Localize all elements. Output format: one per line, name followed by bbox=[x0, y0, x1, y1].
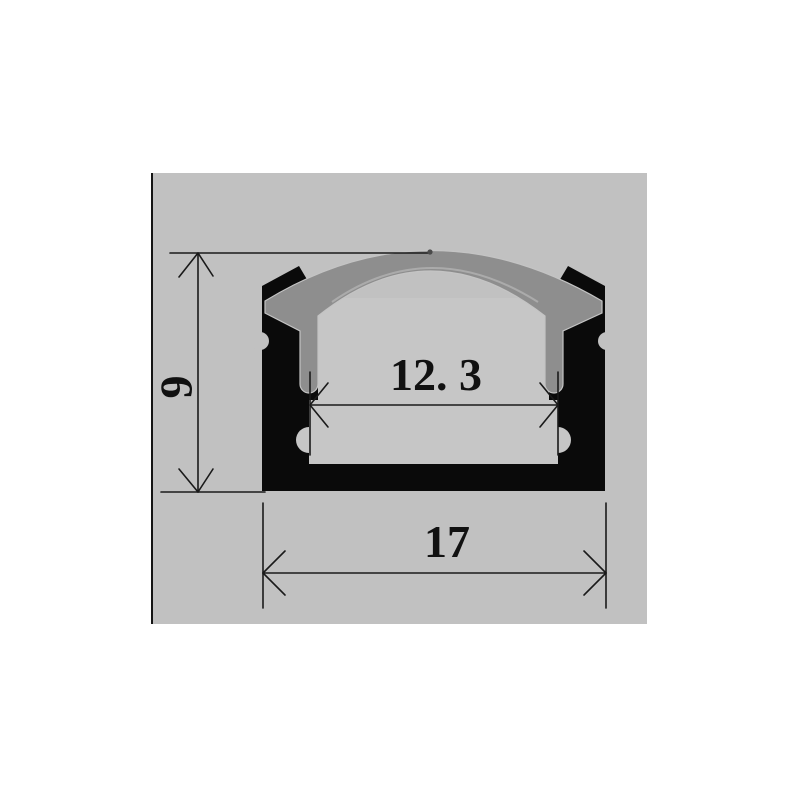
page: 9 12. 3 17 bbox=[0, 0, 800, 800]
height-dimension-label: 9 bbox=[151, 376, 202, 399]
technical-drawing: 9 12. 3 17 bbox=[0, 0, 800, 800]
profile-base bbox=[262, 464, 605, 491]
outer-width-dimension-label: 17 bbox=[424, 516, 470, 567]
inner-width-dimension-label: 12. 3 bbox=[390, 349, 482, 400]
screw-channel-left bbox=[296, 427, 322, 453]
outer-notch-left bbox=[251, 332, 269, 350]
outer-notch-right bbox=[598, 332, 616, 350]
apex-reference-dot bbox=[427, 249, 432, 254]
